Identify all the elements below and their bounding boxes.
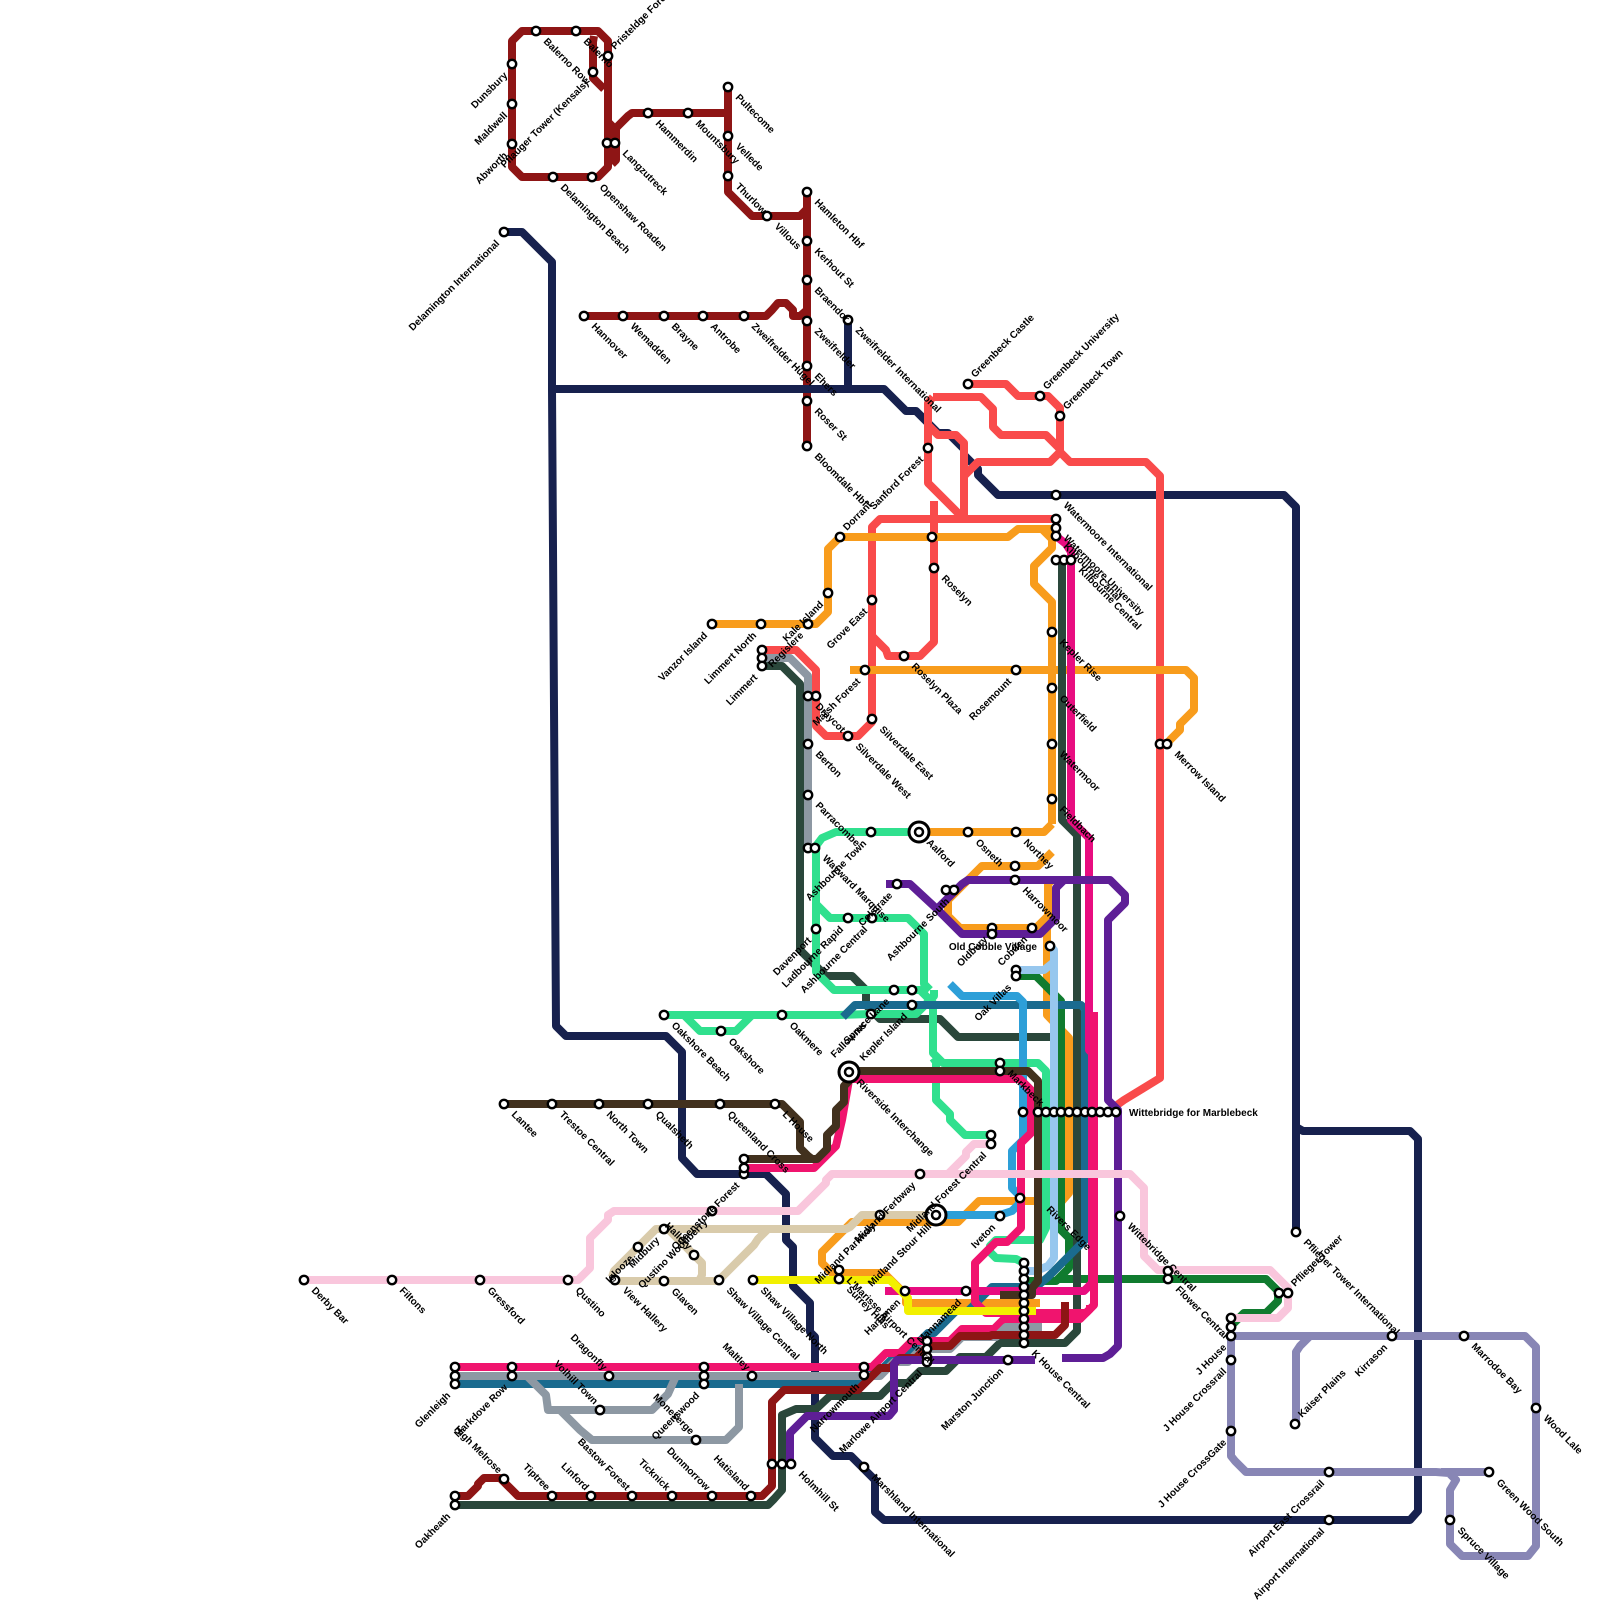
svg-text:Wittebridge for Marblebeck: Wittebridge for Marblebeck (1129, 1108, 1258, 1119)
svg-text:Old Cobble Village: Old Cobble Village (949, 942, 1038, 953)
